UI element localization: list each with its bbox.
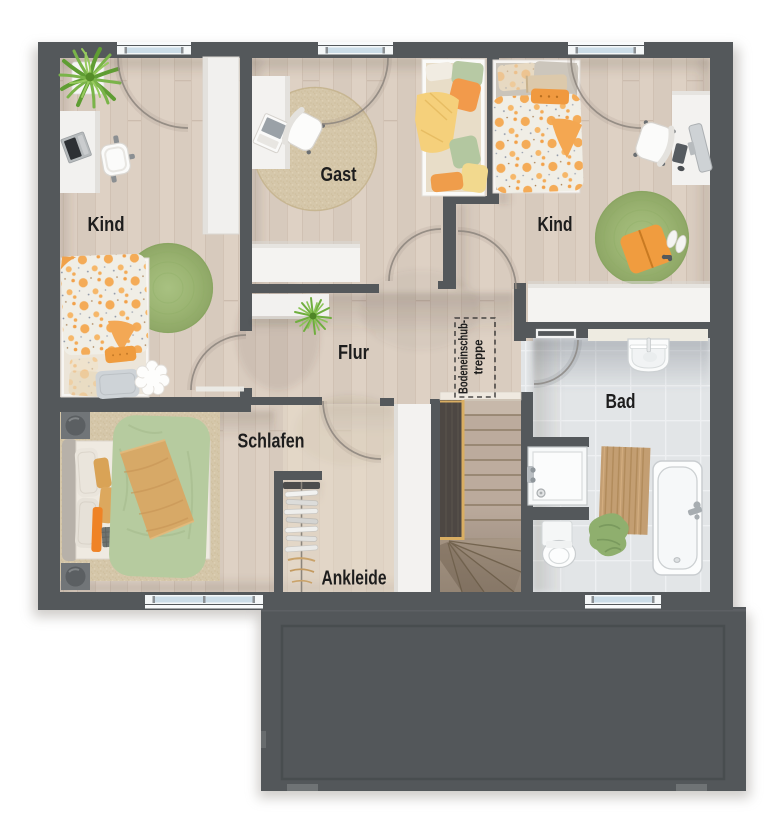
svg-text:Bad: Bad <box>606 391 636 413</box>
svg-text:Gast: Gast <box>321 164 357 186</box>
svg-text:Schlafen: Schlafen <box>238 431 305 453</box>
svg-text:Bodeneinschub-: Bodeneinschub- <box>456 320 471 394</box>
svg-text:Ankleide: Ankleide <box>322 568 387 590</box>
svg-text:Kind: Kind <box>538 214 573 236</box>
svg-text:Flur: Flur <box>338 342 369 364</box>
svg-text:treppe: treppe <box>471 340 486 375</box>
svg-text:Kind: Kind <box>88 214 125 236</box>
